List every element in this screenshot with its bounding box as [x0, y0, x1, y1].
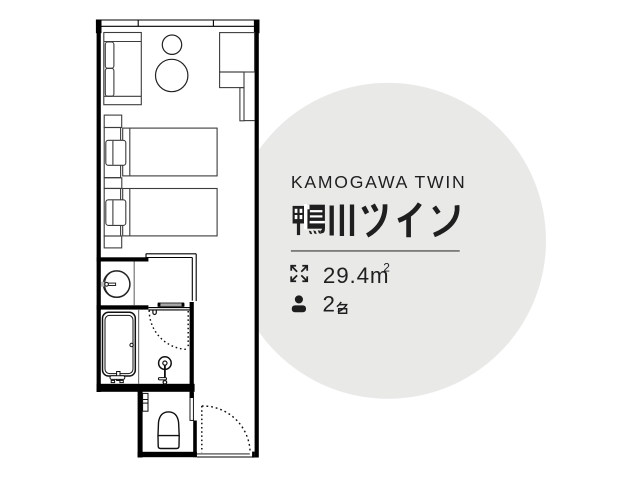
svg-text:29.4m: 29.4m — [323, 263, 389, 288]
svg-text:2: 2 — [323, 292, 335, 317]
svg-text:2: 2 — [383, 260, 390, 274]
svg-text:KAMOGAWA TWIN: KAMOGAWA TWIN — [291, 172, 467, 192]
